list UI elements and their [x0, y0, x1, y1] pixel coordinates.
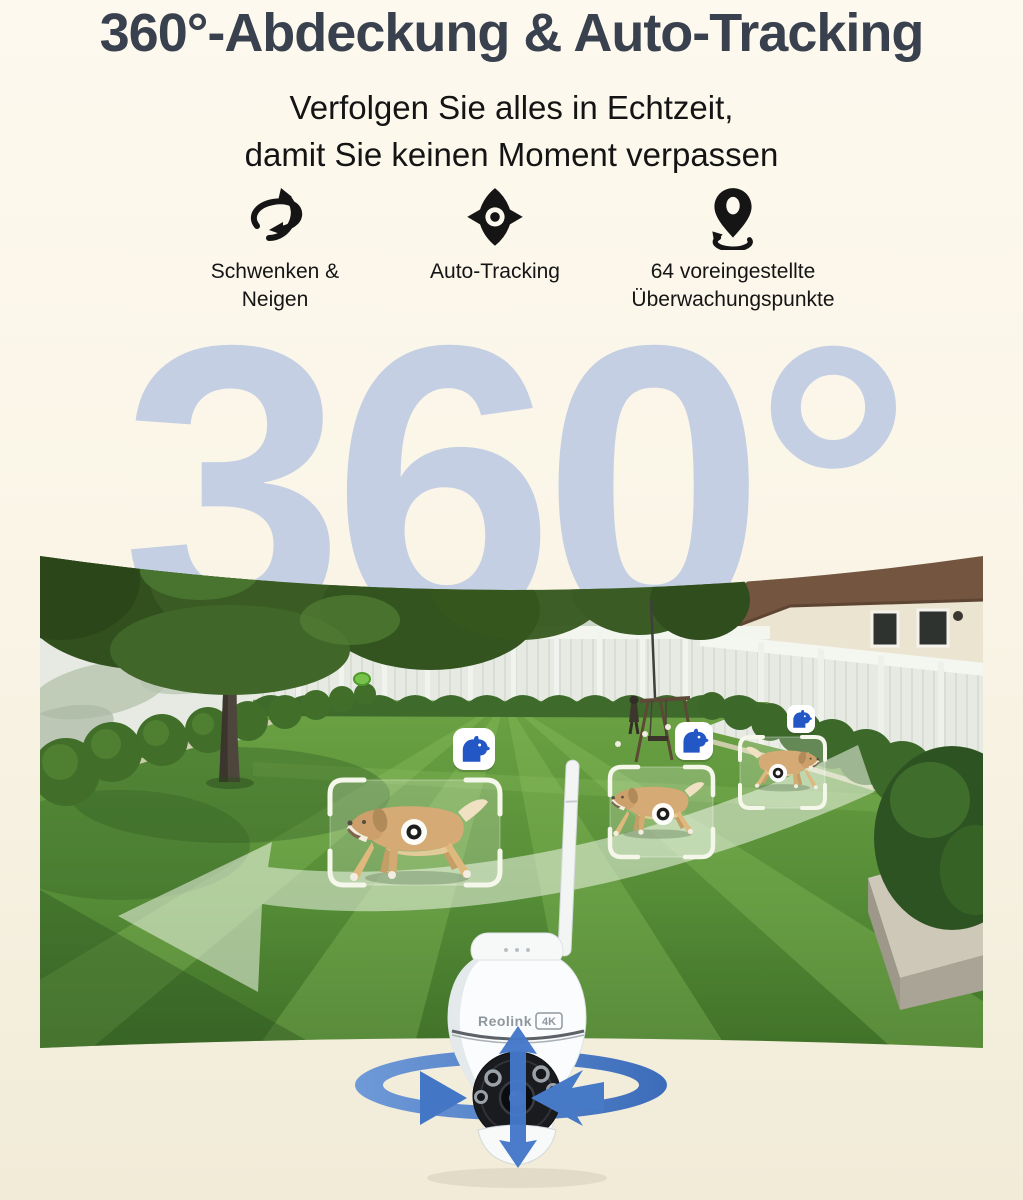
tracking-point-icon	[769, 764, 787, 782]
tracking-point-icon	[652, 803, 674, 825]
dog-badge	[675, 722, 713, 762]
subtitle: Verfolgen Sie alles in Echtzeit, damit S…	[0, 84, 1023, 178]
feature-label: Auto-Tracking	[375, 258, 615, 286]
preset-points-icon	[703, 186, 763, 250]
auto-tracking-icon	[465, 186, 525, 250]
page-title: 360°-Abdeckung & Auto-Tracking	[0, 2, 1023, 64]
camera-4k-badge: 4K	[542, 1016, 556, 1028]
feature-row: Schwenken & Neigen Auto-Tracking 64	[0, 186, 1023, 316]
dog-badge	[787, 705, 815, 735]
feature-auto-tracking: Auto-Tracking	[375, 186, 615, 286]
dog-badge	[453, 728, 495, 772]
camera-brand-label: Reolink	[478, 1013, 532, 1029]
feature-label: Schwenken & Neigen	[155, 258, 395, 314]
feature-pan-tilt: Schwenken & Neigen	[155, 186, 395, 314]
backyard-panorama-photo: Reolink 4K	[0, 0, 1023, 1200]
marketing-page: 360°-Abdeckung & Auto-Tracking Verfolgen…	[0, 0, 1023, 1200]
dog-detection-box	[610, 767, 713, 857]
subtitle-line2: damit Sie keinen Moment verpassen	[245, 136, 779, 173]
tracking-point-icon	[401, 819, 427, 845]
feature-label: 64 voreingestellte Überwachungspunkte	[598, 258, 868, 314]
feature-preset-points: 64 voreingestellte Überwachungspunkte	[598, 186, 868, 314]
subtitle-line1: Verfolgen Sie alles in Echtzeit,	[290, 89, 734, 126]
pan-tilt-icon	[243, 186, 307, 250]
dog-detection-box	[740, 737, 825, 808]
dog-detection-box	[330, 780, 500, 885]
